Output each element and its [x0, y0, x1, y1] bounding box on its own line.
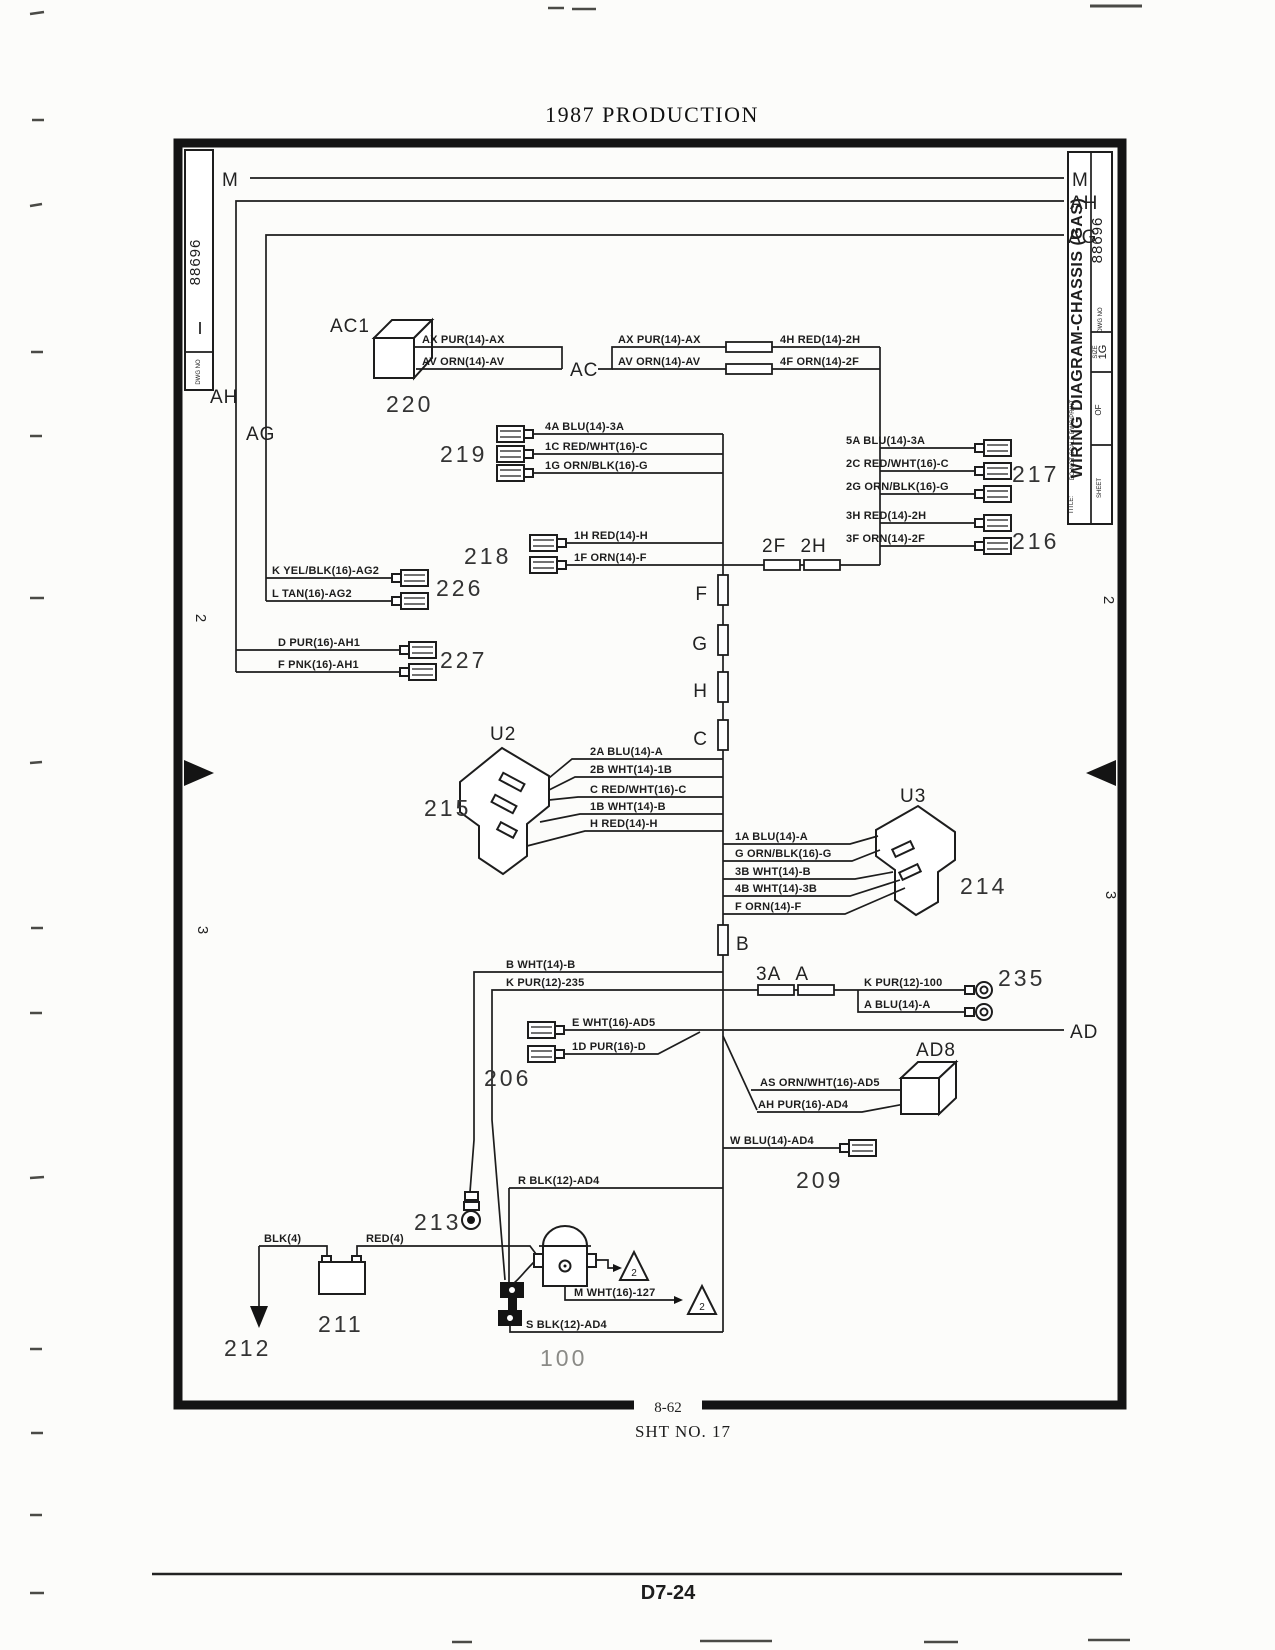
ground-arrow-icon [250, 1306, 268, 1328]
connector-217: 5A BLU(14)-3A 2C RED/WHT(16)-C 2G ORN/BL… [846, 435, 1059, 502]
bus-label-ah-right: AH [1070, 193, 1098, 214]
connector-u3: U3 214 1A BLU(14)-A G ORN/BLK(16)-G 3B W… [723, 786, 1007, 915]
bus-label-ag-mid: AG [246, 424, 275, 445]
wire-label: G ORN/BLK(16)-G [735, 848, 832, 860]
wire-label: D PUR(16)-AH1 [278, 637, 360, 649]
fuse-label-h: H [693, 681, 708, 702]
connector-label-u2: U2 [490, 724, 516, 745]
scanned-wiring-diagram-page: 1987 PRODUCTION D7-24 SHT NO. 17 8-62 2 … [0, 0, 1275, 1650]
wire-label: B WHT(14)-B [506, 959, 575, 971]
terminal-icon [497, 446, 533, 462]
dwg-number: 88696 [187, 239, 204, 286]
connector-label-ac1: AC1 [330, 316, 370, 337]
wire-label: BLK(4) [264, 1233, 301, 1245]
component-number-217: 217 [1012, 461, 1059, 487]
right-zone-arrow-icon [1086, 760, 1116, 786]
wire-label: AV ORN(14)-AV [618, 356, 701, 368]
wiring-diagram-canvas: 1987 PRODUCTION D7-24 SHT NO. 17 8-62 2 … [0, 0, 1275, 1650]
wire-label: 3H RED(14)-2H [846, 510, 926, 522]
arrow-icon [613, 1264, 622, 1272]
component-number-226: 226 [436, 575, 483, 601]
wire-label: 3F ORN(14)-2F [846, 533, 925, 545]
fuse-label-f: F [695, 584, 708, 605]
component-number-100: 100 [540, 1345, 587, 1371]
connector-219: 4A BLU(14)-3A 1C RED/WHT(16)-C 1G ORN/BL… [440, 421, 723, 481]
terminal-icon [975, 463, 1011, 479]
wire-label: R BLK(12)-AD4 [518, 1175, 600, 1187]
wire-label: 2B WHT(14)-1B [590, 764, 672, 776]
page-title: 1987 PRODUCTION [545, 102, 759, 127]
wire-label: AS ORN/WHT(16)-AD5 [760, 1077, 880, 1089]
connector-226: K YEL/BLK(16)-AG2 L TAN(16)-AG2 226 [266, 565, 483, 609]
terminal-icon [975, 486, 1011, 502]
connector-u2: U2 215 2A BLU(14)-A 2B WHT(14)-1B C RED/… [424, 724, 723, 874]
title-block-dwg-label: DWG NO [1098, 307, 1104, 333]
wire-label: AX PUR(14)-AX [422, 334, 505, 346]
connector-218: 1H RED(14)-H 1F ORN(14)-F 218 2F 2H [464, 530, 880, 573]
component-ad8: AS ORN/WHT(16)-AD5 AH PUR(16)-AD4 AD8 [723, 1036, 956, 1114]
terminal-icon [530, 535, 566, 551]
wire-label: 2G ORN/BLK(16)-G [846, 481, 949, 493]
terminal-icon [392, 593, 428, 609]
wire-label: W BLU(14)-AD4 [730, 1135, 815, 1147]
component-number-216: 216 [1012, 528, 1059, 554]
terminal-icon [528, 1046, 564, 1062]
wire-label: 1G ORN/BLK(16)-G [545, 460, 648, 472]
zone-marker: 2 [192, 614, 209, 622]
connector-216: 3H RED(14)-2H 3F ORN(14)-2F 216 [846, 510, 1059, 554]
size-value: 1G [1097, 345, 1109, 360]
frame-page-ref: 8-62 [654, 1400, 682, 1416]
wire-label: 1B WHT(14)-B [590, 801, 666, 813]
splice-label-2f2h: 2F 2H [762, 536, 827, 557]
connector-label-u3: U3 [900, 786, 926, 807]
wire-label: 1C RED/WHT(16)-C [545, 441, 648, 453]
wire-label: 1H RED(14)-H [574, 530, 648, 542]
wire-label: C RED/WHT(16)-C [590, 784, 687, 796]
wire-label: M WHT(16)-127 [574, 1287, 655, 1299]
wire-label: K PUR(12)-100 [864, 977, 942, 989]
wire-label: 1A BLU(14)-A [735, 831, 808, 843]
wire-label: S BLK(12)-AD4 [526, 1319, 608, 1331]
left-dwg-strip: 88696 DWG NO [185, 150, 213, 390]
scale-note: DO NOT SCALE DWG/PRINT [1070, 399, 1076, 480]
wire-label: 2C RED/WHT(16)-C [846, 458, 949, 470]
title-label: TITLE: [1069, 496, 1075, 514]
bus-label-ah-mid: AH [210, 387, 238, 408]
dwg-number-label: DWG NO [196, 359, 202, 385]
component-number-235: 235 [998, 965, 1045, 991]
wire-label: K YEL/BLK(16)-AG2 [272, 565, 379, 577]
wire-label: 2A BLU(14)-A [590, 746, 663, 758]
fuse-label-g: G [692, 634, 708, 655]
connector-227: D PUR(16)-AH1 F PNK(16)-AH1 227 [236, 637, 487, 680]
terminal-icon [530, 557, 566, 573]
wire-label: RED(4) [366, 1233, 404, 1245]
zone-marker: 3 [1102, 891, 1119, 899]
zone-marker: 3 [194, 926, 211, 934]
fuse-label-b: B [736, 934, 750, 955]
wire-label: F ORN(14)-F [735, 901, 801, 913]
connector-label-ad8: AD8 [916, 1040, 956, 1061]
splice-label-3a-a: 3A A [756, 964, 809, 985]
component-number-211: 211 [318, 1311, 364, 1337]
component-100: R BLK(12)-AD4 S BLK(12)-AD4 2 M WHT(16)-… [498, 1175, 723, 1371]
triangle-ref-number: 2 [631, 1268, 637, 1279]
fuse-label-c: C [693, 729, 708, 750]
terminal-icon [975, 515, 1011, 531]
terminal-icon [840, 1140, 876, 1156]
wire-label: AH PUR(16)-AD4 [758, 1099, 849, 1111]
connector-209: W BLU(14)-AD4 209 [723, 1135, 876, 1193]
of-label: OF [1094, 404, 1103, 415]
wire-label: AX PUR(14)-AX [618, 334, 701, 346]
wire-label: 1F ORN(14)-F [574, 552, 647, 564]
wire-label: 1D PUR(16)-D [572, 1041, 646, 1053]
component-number-218: 218 [464, 543, 511, 569]
terminal-icon [497, 465, 533, 481]
bus-label-ag-right: AG [1068, 227, 1097, 248]
terminal-icon [975, 538, 1011, 554]
connector-213: 213 [414, 1192, 480, 1235]
triangle-ref-number: 2 [699, 1302, 705, 1313]
wire-label: AV ORN(14)-AV [422, 356, 505, 368]
wire-label: 4F ORN(14)-2F [780, 356, 859, 368]
bus-label-ac: AC [570, 360, 598, 381]
arrow-icon [674, 1296, 683, 1304]
wire-label: 3B WHT(14)-B [735, 866, 811, 878]
wire-label: H RED(14)-H [590, 818, 658, 830]
terminal-icon [400, 642, 436, 658]
wire-label: 4A BLU(14)-3A [545, 421, 624, 433]
wire-label: F PNK(16)-AH1 [278, 659, 359, 671]
bus-label-ad: AD [1070, 1022, 1098, 1043]
wire-label: 4B WHT(14)-3B [735, 883, 817, 895]
bus-label-m-left: M [222, 170, 239, 191]
terminal-icon [497, 426, 533, 442]
wire-label: 4H RED(14)-2H [780, 334, 860, 346]
component-number-212: 212 [224, 1335, 271, 1361]
component-number-213: 213 [414, 1209, 461, 1235]
bus-label-m-right: M [1072, 170, 1089, 191]
component-ac1: AC1 220 [330, 316, 433, 417]
wire-label: K PUR(12)-235 [506, 977, 584, 989]
sheet-label: SHEET [1097, 478, 1103, 498]
terminal-icon [392, 570, 428, 586]
page-number: D7-24 [641, 1582, 696, 1604]
wire-label: 5A BLU(14)-3A [846, 435, 925, 447]
component-number-227: 227 [440, 647, 487, 673]
component-number-206: 206 [484, 1065, 531, 1091]
sheet-number-label: SHT NO. 17 [635, 1422, 731, 1441]
component-number-209: 209 [796, 1167, 843, 1193]
terminal-icon [528, 1022, 564, 1038]
zone-marker: 2 [1100, 596, 1117, 604]
terminal-icon [400, 664, 436, 680]
wire-label: A BLU(14)-A [864, 999, 931, 1011]
component-number-215: 215 [424, 795, 471, 821]
battery-circuit: BLK(4) RED(4) 211 212 [224, 1233, 536, 1361]
component-number-214: 214 [960, 873, 1007, 899]
wire-label: L TAN(16)-AG2 [272, 588, 352, 600]
left-zone-arrow-icon [184, 760, 214, 786]
terminal-icon [975, 440, 1011, 456]
wire-label: E WHT(16)-AD5 [572, 1017, 655, 1029]
component-number-219: 219 [440, 441, 487, 467]
component-number-220: 220 [386, 391, 433, 417]
